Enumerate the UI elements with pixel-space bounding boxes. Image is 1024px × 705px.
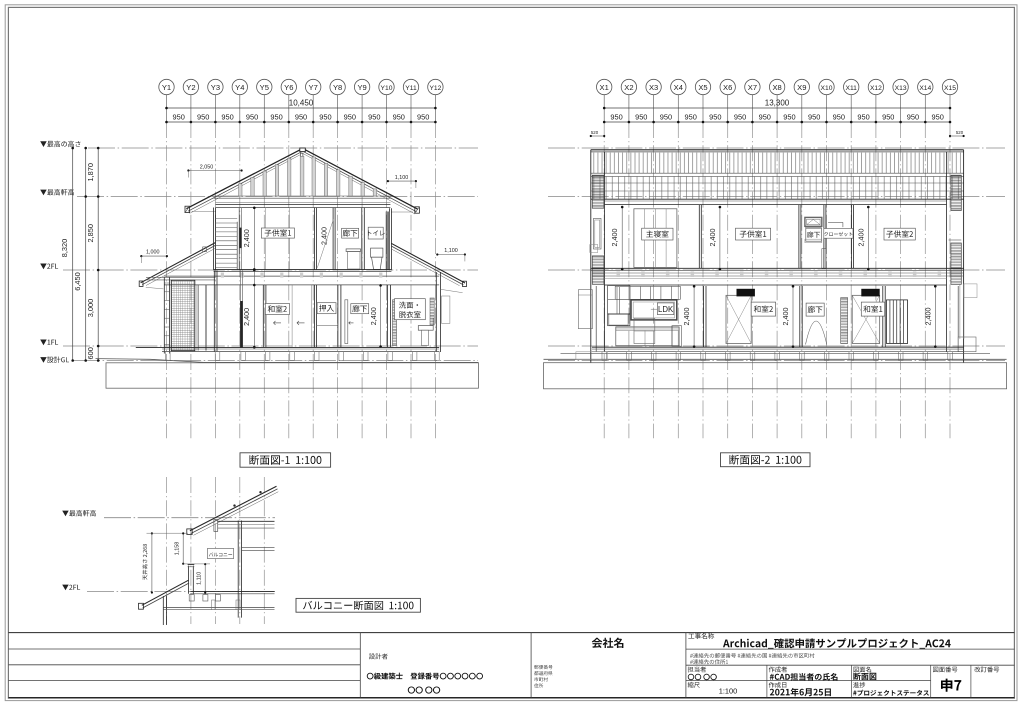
svg-text:X15: X15 — [944, 85, 956, 92]
svg-text:950: 950 — [197, 113, 209, 122]
svg-text:Y7: Y7 — [309, 83, 318, 92]
svg-text:950: 950 — [857, 113, 869, 122]
svg-text:X5: X5 — [698, 83, 707, 92]
svg-text:2,400: 2,400 — [242, 308, 251, 326]
svg-text:1,000: 1,000 — [146, 249, 160, 255]
svg-text:X11: X11 — [845, 85, 857, 92]
svg-text:2,400: 2,400 — [781, 308, 790, 326]
svg-text:950: 950 — [610, 113, 622, 122]
svg-text:1,100: 1,100 — [444, 248, 458, 254]
svg-text:950: 950 — [759, 113, 771, 122]
svg-text:13,300: 13,300 — [765, 99, 790, 108]
svg-text:X1: X1 — [600, 83, 609, 92]
svg-text:X3: X3 — [649, 83, 658, 92]
svg-text:2,050: 2,050 — [200, 164, 214, 170]
svg-text:X10: X10 — [821, 85, 833, 92]
svg-text:Y8: Y8 — [333, 83, 342, 92]
svg-text:6,450: 6,450 — [73, 272, 82, 291]
svg-text:950: 950 — [734, 113, 746, 122]
svg-text:X12: X12 — [870, 85, 882, 92]
svg-text:950: 950 — [660, 113, 672, 122]
svg-text:2,400: 2,400 — [682, 308, 691, 326]
svg-text:950: 950 — [709, 113, 721, 122]
svg-text:1:100: 1:100 — [719, 687, 738, 696]
svg-text:1,158: 1,158 — [175, 542, 181, 556]
svg-text:950: 950 — [907, 113, 919, 122]
svg-text:950: 950 — [882, 113, 894, 122]
svg-text:X2: X2 — [624, 83, 633, 92]
svg-text:X9: X9 — [797, 83, 806, 92]
svg-text:Y5: Y5 — [260, 83, 269, 92]
svg-text:950: 950 — [295, 113, 307, 122]
svg-text:Y6: Y6 — [284, 83, 293, 92]
svg-text:950: 950 — [173, 113, 185, 122]
svg-text:X4: X4 — [674, 83, 683, 92]
svg-text:X13: X13 — [895, 85, 907, 92]
svg-text:Y12: Y12 — [429, 85, 441, 92]
svg-text:Y1: Y1 — [162, 83, 171, 92]
svg-text:Y11: Y11 — [405, 85, 417, 92]
svg-text:Y2: Y2 — [186, 83, 195, 92]
svg-text:520: 520 — [956, 130, 964, 135]
svg-text:950: 950 — [931, 113, 943, 122]
svg-text:1,870: 1,870 — [86, 163, 95, 182]
svg-text:Y10: Y10 — [381, 85, 393, 92]
svg-text:950: 950 — [319, 113, 331, 122]
svg-text:950: 950 — [417, 113, 429, 122]
svg-text:520: 520 — [591, 130, 599, 135]
svg-text:1,110: 1,110 — [197, 572, 203, 585]
svg-text:2,400: 2,400 — [610, 229, 619, 247]
svg-text:950: 950 — [393, 113, 405, 122]
svg-text:Y4: Y4 — [235, 83, 244, 92]
svg-text:2,400: 2,400 — [856, 229, 865, 247]
svg-text:950: 950 — [635, 113, 647, 122]
svg-text:950: 950 — [808, 113, 820, 122]
svg-text:950: 950 — [368, 113, 380, 122]
svg-text:8,320: 8,320 — [60, 239, 69, 258]
svg-text:3,000: 3,000 — [86, 299, 95, 318]
svg-text:Y3: Y3 — [211, 83, 220, 92]
svg-text:2,400: 2,400 — [369, 307, 378, 325]
svg-text:2,400: 2,400 — [242, 229, 251, 247]
svg-text:2,400: 2,400 — [319, 227, 328, 245]
svg-text:950: 950 — [221, 113, 233, 122]
svg-text:X14: X14 — [919, 85, 931, 92]
svg-text:Y9: Y9 — [357, 83, 366, 92]
svg-text:2,400: 2,400 — [923, 308, 932, 326]
svg-text:LDK: LDK — [658, 305, 674, 314]
svg-text:950: 950 — [246, 113, 258, 122]
svg-text:2,850: 2,850 — [86, 224, 95, 243]
svg-text:1,100: 1,100 — [395, 175, 409, 181]
svg-text:X7: X7 — [748, 83, 757, 92]
svg-text:X8: X8 — [772, 83, 781, 92]
svg-text:950: 950 — [684, 113, 696, 122]
svg-text:950: 950 — [344, 113, 356, 122]
svg-text:10,450: 10,450 — [289, 99, 314, 108]
svg-text:X6: X6 — [723, 83, 732, 92]
svg-text:950: 950 — [833, 113, 845, 122]
svg-text:950: 950 — [783, 113, 795, 122]
svg-text:2,400: 2,400 — [708, 229, 717, 247]
svg-text:950: 950 — [270, 113, 282, 122]
svg-text:600: 600 — [86, 347, 95, 359]
